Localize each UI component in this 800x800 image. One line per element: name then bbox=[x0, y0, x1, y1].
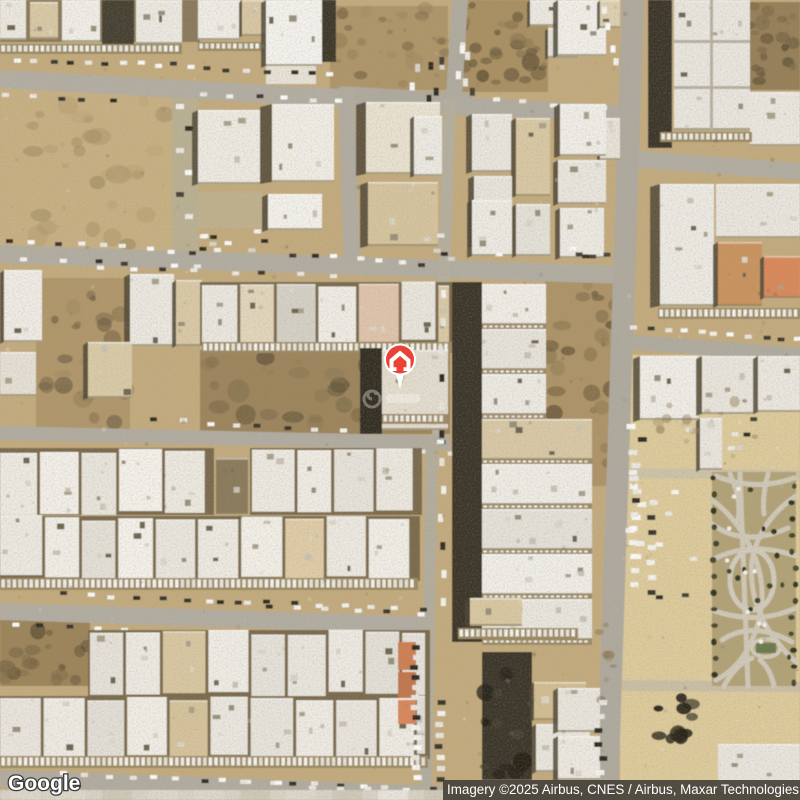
svg-text:Google: Google bbox=[8, 772, 80, 795]
svg-text:Imagery ©2025 Airbus, CNES / A: Imagery ©2025 Airbus, CNES / Airbus, Max… bbox=[447, 782, 799, 797]
